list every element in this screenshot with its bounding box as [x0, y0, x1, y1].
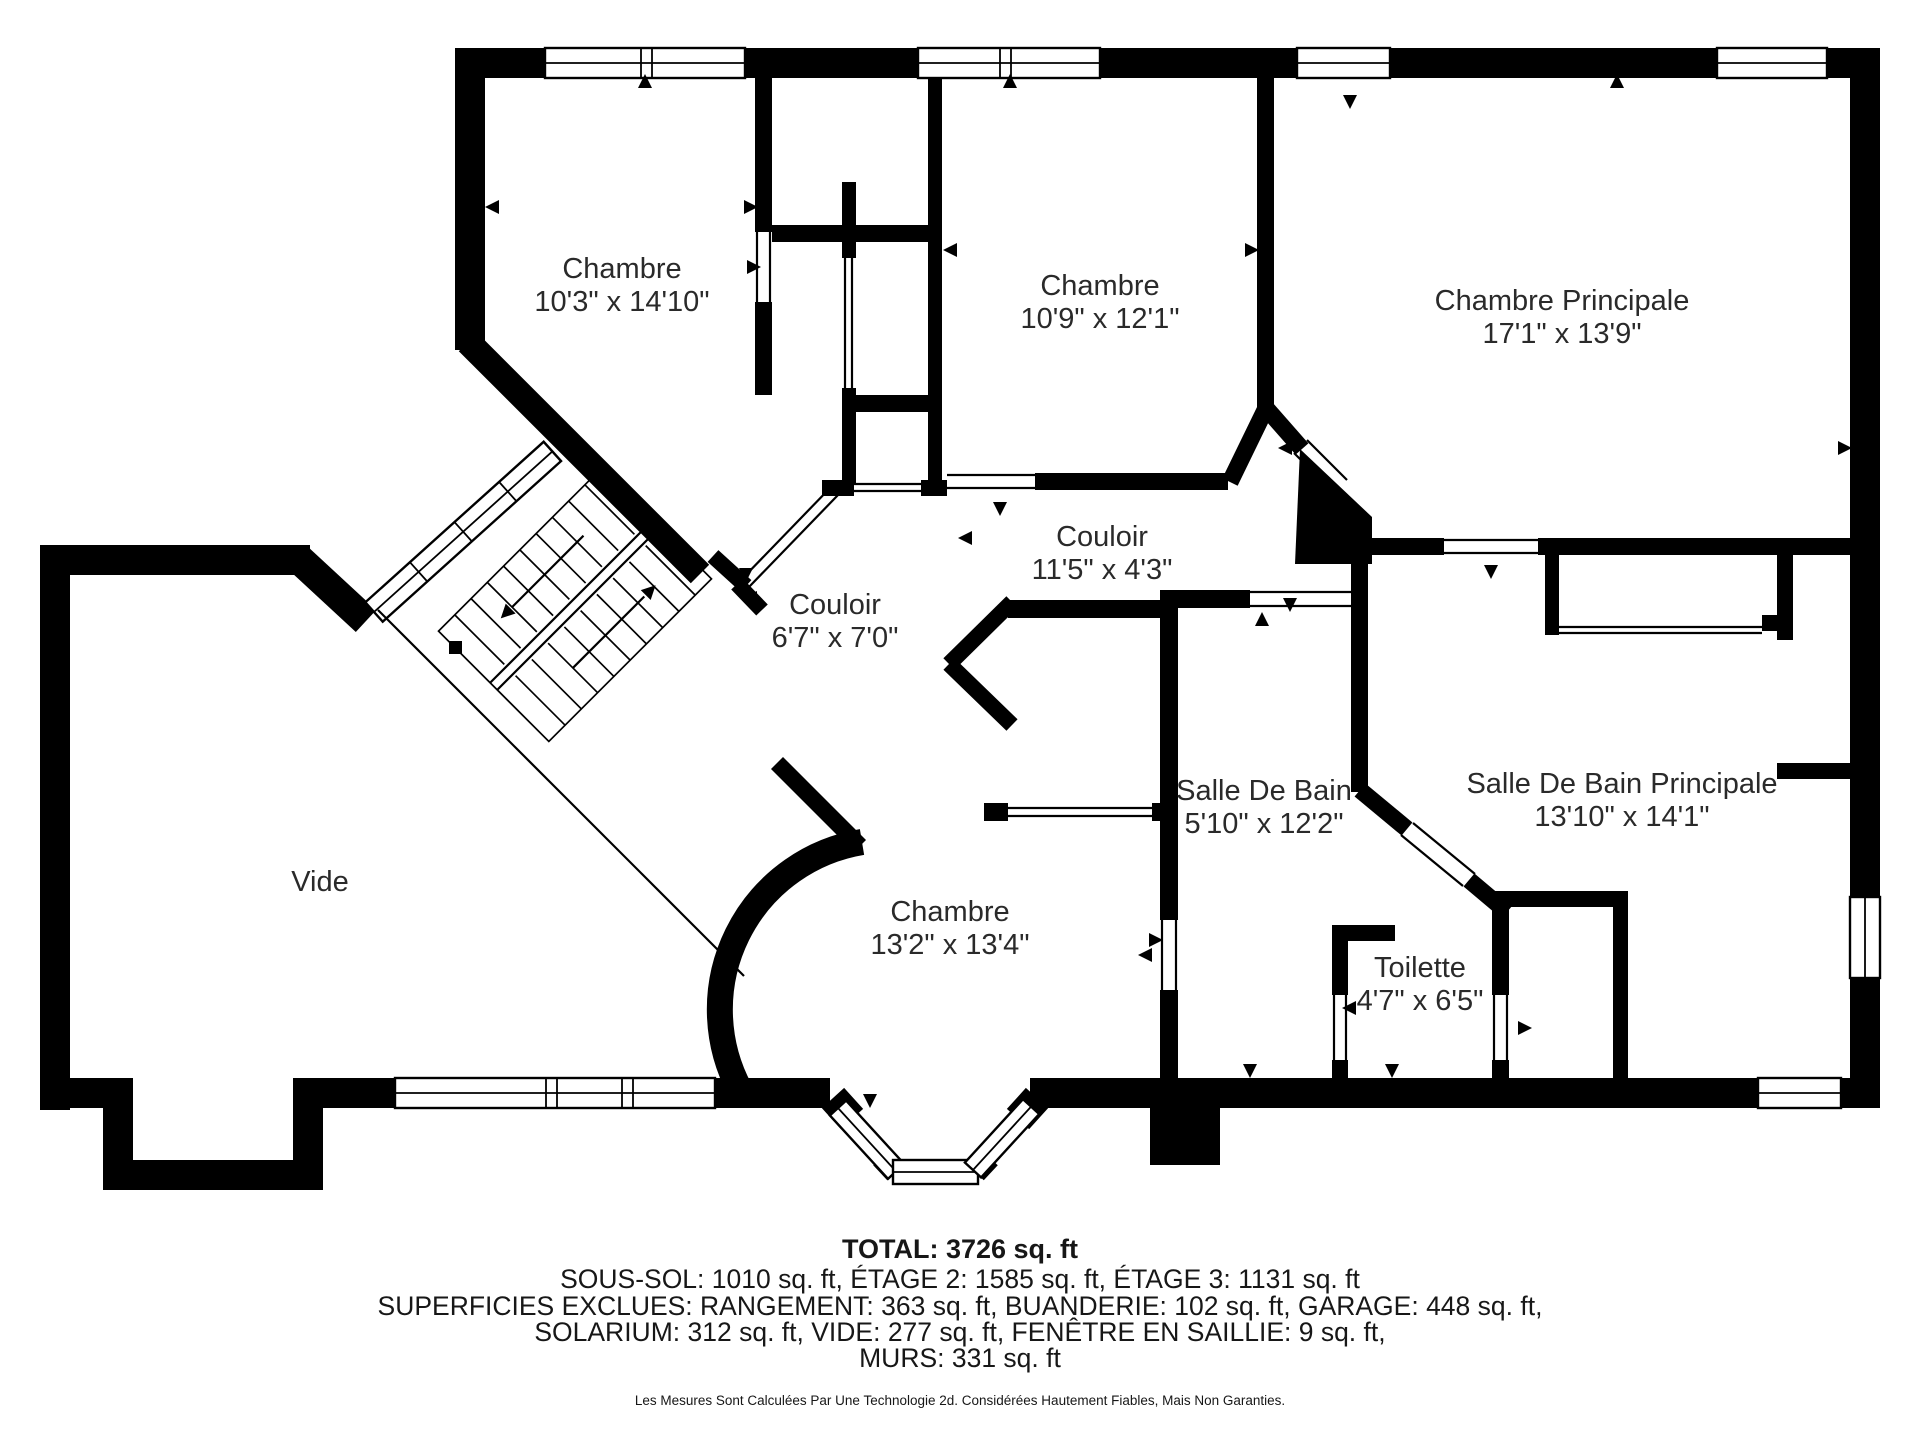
room-label-chambre-3-name: Chambre — [890, 896, 1009, 928]
window — [918, 48, 1100, 78]
window — [1717, 48, 1827, 78]
room-label-salle-de-bain-principale-dims: 13'10" x 14'1" — [1534, 801, 1709, 833]
room-label-salle-de-bain-dims: 5'10" x 12'2" — [1184, 808, 1343, 840]
window — [1297, 48, 1390, 78]
floor-plan-page: Chambre 10'3" x 14'10" Chambre 10'9" x 1… — [0, 0, 1920, 1440]
room-label-couloir-1-name: Couloir — [1056, 521, 1148, 553]
window — [545, 48, 745, 78]
room-label-vide-name: Vide — [291, 866, 349, 898]
room-label-salle-de-bain-name: Salle De Bain — [1176, 775, 1352, 807]
room-label-chambre-principale-name: Chambre Principale — [1435, 285, 1690, 317]
room-label-couloir-2-dims: 6'7" x 7'0" — [772, 622, 899, 654]
room-label-couloir-1-dims: 11'5" x 4'3" — [1032, 554, 1173, 586]
disclaimer-text: Les Mesures Sont Calculées Par Une Techn… — [635, 1393, 1285, 1408]
window — [1758, 1078, 1841, 1108]
summary-line-5: MURS: 331 sq. ft — [859, 1343, 1061, 1373]
room-label-salle-de-bain-principale-name: Salle De Bain Principale — [1466, 768, 1777, 800]
floor-plan-svg: Chambre 10'3" x 14'10" Chambre 10'9" x 1… — [0, 0, 1920, 1440]
room-label-chambre-1-name: Chambre — [562, 253, 681, 285]
background — [0, 0, 1920, 1440]
window — [395, 1078, 715, 1108]
room-label-toilette-dims: 4'7" x 6'5" — [1357, 985, 1484, 1017]
room-label-chambre-3-dims: 13'2" x 13'4" — [870, 929, 1029, 961]
room-label-chambre-2-dims: 10'9" x 12'1" — [1020, 303, 1179, 335]
room-label-chambre-1-dims: 10'3" x 14'10" — [534, 286, 709, 318]
room-label-chambre-principale-dims: 17'1" x 13'9" — [1482, 318, 1641, 350]
summary-line-2: SOUS-SOL: 1010 sq. ft, ÉTAGE 2: 1585 sq.… — [560, 1264, 1360, 1294]
room-label-toilette-name: Toilette — [1374, 952, 1466, 984]
room-label-couloir-2-name: Couloir — [789, 589, 881, 621]
room-label-chambre-2-name: Chambre — [1040, 270, 1159, 302]
window — [1850, 897, 1880, 978]
summary-total: TOTAL: 3726 sq. ft — [842, 1234, 1078, 1264]
newel-post — [449, 641, 462, 654]
